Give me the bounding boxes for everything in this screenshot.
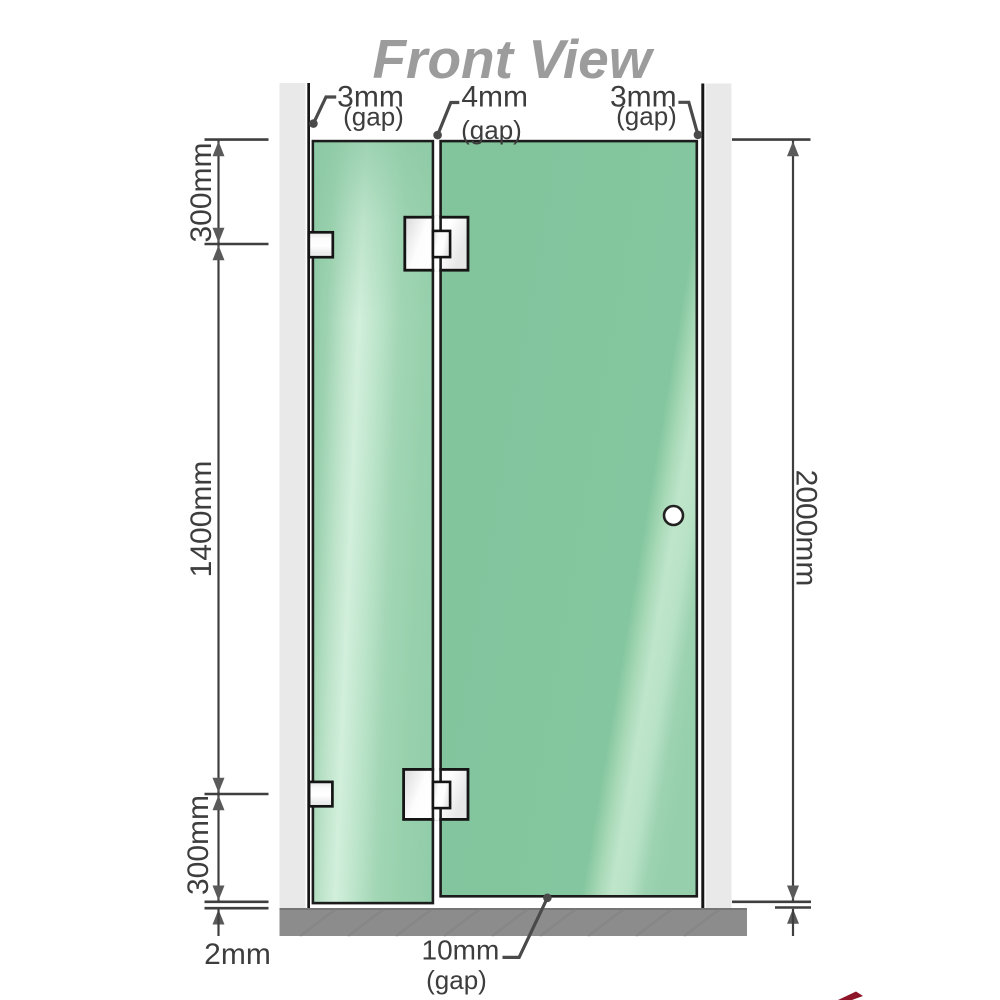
svg-text:(gap): (gap) [616,101,677,131]
svg-text:300mm: 300mm [182,795,215,895]
svg-text:1400mm: 1400mm [185,461,218,578]
svg-text:2000mm: 2000mm [790,470,823,587]
svg-text:2mm: 2mm [204,938,271,971]
svg-text:4mm: 4mm [461,81,528,114]
svg-text:(gap): (gap) [343,102,404,132]
svg-text:10mm: 10mm [422,935,500,966]
svg-text:(gap): (gap) [426,965,487,995]
svg-text:(gap): (gap) [461,115,522,145]
svg-text:300mm: 300mm [185,142,218,242]
